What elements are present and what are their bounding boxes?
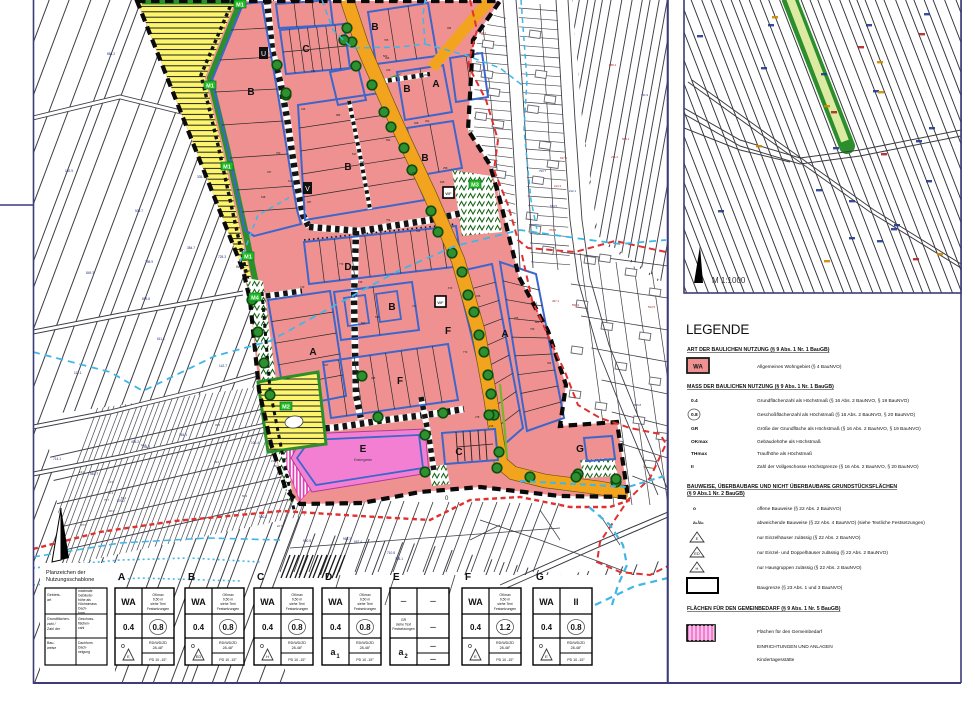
svg-text:A: A xyxy=(118,572,125,583)
svg-text:249: 249 xyxy=(386,68,391,72)
svg-text:899.8: 899.8 xyxy=(142,297,150,301)
svg-text:952.3: 952.3 xyxy=(343,537,351,541)
svg-text:WA: WA xyxy=(260,597,275,607)
svg-text:Festsetzungen: Festsetzungen xyxy=(286,607,308,611)
svg-text:LEGENDE: LEGENDE xyxy=(686,322,749,337)
svg-text:28-48°: 28-48° xyxy=(292,646,303,650)
svg-text:0.4: 0.4 xyxy=(193,623,205,632)
svg-text:212.1: 212.1 xyxy=(569,189,576,193)
svg-text:Gebäude-: Gebäude- xyxy=(78,593,93,597)
svg-text:A: A xyxy=(309,347,316,358)
svg-text:RD/WD/ZD: RD/WD/ZD xyxy=(288,641,306,645)
svg-text:111.1: 111.1 xyxy=(74,371,82,375)
svg-text:986: 986 xyxy=(336,113,341,117)
svg-text:96.9: 96.9 xyxy=(109,509,115,513)
svg-text:44.2: 44.2 xyxy=(141,443,147,447)
svg-text:–: – xyxy=(430,654,436,665)
svg-text:9,50 m: 9,50 m xyxy=(153,598,164,602)
svg-text:607: 607 xyxy=(324,363,329,367)
svg-text:WA: WA xyxy=(693,365,703,371)
svg-text:590.9: 590.9 xyxy=(572,303,579,307)
svg-text:28-48°: 28-48° xyxy=(571,646,582,650)
svg-text:ART DER BAULICHEN NUTZUNG (§ 9: ART DER BAULICHEN NUTZUNG (§ 9 Abs. 1 Nr… xyxy=(687,347,830,353)
svg-text:C: C xyxy=(455,447,462,458)
svg-text:495.2: 495.2 xyxy=(131,440,139,444)
svg-text:B: B xyxy=(388,302,395,313)
svg-text:WF: WF xyxy=(445,191,452,196)
svg-text:F: F xyxy=(397,376,403,387)
svg-text:THmax: THmax xyxy=(691,451,707,457)
svg-text:o: o xyxy=(468,643,472,650)
svg-text:28-48°: 28-48° xyxy=(223,646,234,650)
svg-text:FLÄCHEN FÜR DEN GEMEINBEDARF (: FLÄCHEN FÜR DEN GEMEINBEDARF (§ 9 Abs. 1… xyxy=(687,605,841,612)
svg-text:B: B xyxy=(247,87,254,98)
svg-text:flächen-: flächen- xyxy=(78,621,90,625)
svg-text:308.1: 308.1 xyxy=(395,557,403,561)
svg-text:911: 911 xyxy=(288,179,293,183)
svg-text:0.4: 0.4 xyxy=(123,623,135,632)
svg-text:Flächen für den Gemeinbedarf: Flächen für den Gemeinbedarf xyxy=(757,629,823,635)
svg-text:M4: M4 xyxy=(251,296,260,302)
svg-text:606.8: 606.8 xyxy=(634,403,641,407)
svg-text:590: 590 xyxy=(469,129,474,133)
svg-text:731.9: 731.9 xyxy=(641,93,648,97)
svg-text:E: E xyxy=(696,536,699,541)
svg-text:0.8: 0.8 xyxy=(570,623,582,632)
svg-text:798.9: 798.9 xyxy=(145,260,153,264)
svg-text:195: 195 xyxy=(358,280,363,284)
svg-text:888.4: 888.4 xyxy=(609,63,616,67)
svg-text:Kindertagesstätte: Kindertagesstätte xyxy=(757,657,795,663)
svg-text:Festsetzungen: Festsetzungen xyxy=(392,627,414,631)
svg-text:siehe Text: siehe Text xyxy=(289,602,304,606)
svg-text:o: o xyxy=(260,643,264,650)
svg-text:E: E xyxy=(545,654,548,659)
svg-text:9,50 m: 9,50 m xyxy=(223,598,234,602)
svg-text:1.2: 1.2 xyxy=(499,623,511,632)
svg-text:765: 765 xyxy=(384,38,389,42)
svg-text:RD/WD/ZD: RD/WD/ZD xyxy=(149,641,167,645)
svg-text:793.7: 793.7 xyxy=(539,169,546,173)
svg-text:B: B xyxy=(371,22,378,33)
svg-text:F: F xyxy=(445,326,451,337)
svg-text:254: 254 xyxy=(412,171,417,175)
svg-text:ED: ED xyxy=(196,654,202,659)
svg-text:WA: WA xyxy=(539,597,554,607)
svg-text:436: 436 xyxy=(301,107,306,111)
svg-text:weise: weise xyxy=(47,646,56,650)
svg-text:siehe Text: siehe Text xyxy=(497,602,512,606)
svg-text:D: D xyxy=(344,262,351,273)
svg-text:723: 723 xyxy=(412,304,417,308)
svg-text:Nutzungsschablone: Nutzungsschablone xyxy=(46,577,94,583)
svg-text:29.4: 29.4 xyxy=(214,460,220,464)
svg-text:581.7: 581.7 xyxy=(90,472,98,476)
svg-text:28-48°: 28-48° xyxy=(500,646,511,650)
svg-text:M 1:1000: M 1:1000 xyxy=(712,276,746,285)
svg-text:703.9: 703.9 xyxy=(549,228,556,232)
svg-text:OKmax: OKmax xyxy=(152,593,164,597)
svg-text:–: – xyxy=(430,641,436,652)
svg-text:–: – xyxy=(401,596,407,607)
svg-text:siehe Text: siehe Text xyxy=(396,623,411,627)
svg-text:9,50 m: 9,50 m xyxy=(500,598,511,602)
svg-text:D: D xyxy=(325,572,332,583)
svg-text:384.7: 384.7 xyxy=(187,246,195,250)
svg-text:Festsetzungen: Festsetzungen xyxy=(217,607,239,611)
svg-text:56.3: 56.3 xyxy=(121,496,127,500)
svg-text:668.4: 668.4 xyxy=(622,137,629,141)
svg-text:10.3: 10.3 xyxy=(108,491,114,495)
svg-text:305: 305 xyxy=(371,376,376,380)
svg-text:13.2: 13.2 xyxy=(79,470,85,474)
svg-text:100.4: 100.4 xyxy=(251,441,259,445)
svg-text:E: E xyxy=(474,654,477,659)
svg-text:Traufhöhe als Höchstmaß: Traufhöhe als Höchstmaß xyxy=(757,451,812,457)
svg-text:WA: WA xyxy=(191,597,206,607)
svg-text:192.9: 192.9 xyxy=(65,169,73,173)
svg-text:MASS DER BAULICHEN NUTZUNG (§: MASS DER BAULICHEN NUTZUNG (§ 9 Abs. 1 N… xyxy=(687,384,834,390)
svg-text:M3: M3 xyxy=(471,183,479,189)
svg-text:Dach-: Dach- xyxy=(78,645,87,649)
svg-text:A: A xyxy=(501,329,508,340)
svg-text:offene Bauweise (§ 22 Abs. 2 B: offene Bauweise (§ 22 Abs. 2 BauNVO) xyxy=(757,506,842,512)
svg-text:M1: M1 xyxy=(223,165,231,171)
svg-text:PD 10 -15°: PD 10 -15° xyxy=(567,658,585,662)
svg-text:G: G xyxy=(536,572,544,583)
svg-text:Höchstmass: Höchstmass xyxy=(78,602,97,606)
svg-text:710.8: 710.8 xyxy=(387,551,395,555)
svg-text:Bau-: Bau- xyxy=(47,641,55,645)
svg-text:Planzeichen der: Planzeichen der xyxy=(46,570,86,576)
svg-text:78.2: 78.2 xyxy=(238,508,244,512)
svg-text:Festsetzungen: Festsetzungen xyxy=(147,607,169,611)
svg-text:596: 596 xyxy=(375,315,380,319)
svg-text:PD 10 -15°: PD 10 -15° xyxy=(496,658,514,662)
svg-text:RD/WD/ZD: RD/WD/ZD xyxy=(356,641,374,645)
svg-text:9,50 m: 9,50 m xyxy=(292,598,303,602)
svg-text:Dach-: Dach- xyxy=(78,607,87,611)
svg-text:–: – xyxy=(430,596,436,607)
svg-text:M1: M1 xyxy=(206,84,214,90)
svg-text:764: 764 xyxy=(386,218,391,222)
svg-text:höhe als: höhe als xyxy=(78,598,91,602)
svg-text:0.8: 0.8 xyxy=(691,412,698,418)
svg-text:665: 665 xyxy=(440,180,445,184)
svg-text:Grundflächen-: Grundflächen- xyxy=(47,617,71,621)
svg-text:zahl /: zahl / xyxy=(47,622,56,626)
svg-text:PD 10 -15°: PD 10 -15° xyxy=(288,658,306,662)
svg-text:E: E xyxy=(393,572,400,583)
svg-text:278: 278 xyxy=(475,415,480,419)
svg-text:39.5: 39.5 xyxy=(215,423,221,427)
svg-text:258: 258 xyxy=(443,166,448,170)
svg-text:504.7: 504.7 xyxy=(135,209,143,213)
svg-text:siehe Text: siehe Text xyxy=(220,602,235,606)
svg-text:H: H xyxy=(266,654,269,659)
svg-text:0.4: 0.4 xyxy=(330,623,342,632)
svg-text:OKmax: OKmax xyxy=(359,593,371,597)
svg-text:Gebäudehöhe als Höchstmaß: Gebäudehöhe als Höchstmaß xyxy=(757,439,821,445)
svg-text:Geschoss-: Geschoss- xyxy=(78,617,94,621)
svg-text:547: 547 xyxy=(352,152,357,156)
svg-text:OKmax: OKmax xyxy=(291,593,303,597)
svg-text:611.1: 611.1 xyxy=(157,337,165,341)
svg-text:538: 538 xyxy=(261,195,266,199)
svg-text:Zahl der: Zahl der xyxy=(47,627,61,631)
svg-text:V: V xyxy=(305,186,310,193)
svg-text:maximale: maximale xyxy=(78,589,93,593)
svg-text:Geschoßflächenzahl als Höchstm: Geschoßflächenzahl als Höchstmaß (§ 16 A… xyxy=(757,412,916,418)
svg-text:a₁/a₂: a₁/a₂ xyxy=(693,520,704,526)
svg-text:213.4: 213.4 xyxy=(554,184,561,188)
svg-text:Grundflächenzahl als Höchstmaß: Grundflächenzahl als Höchstmaß (§ 16 Abs… xyxy=(757,398,909,404)
svg-text:abweichende Bauweise (§ 22 Abs: abweichende Bauweise (§ 22 Abs. 4 BauNVO… xyxy=(757,520,925,526)
svg-text:394: 394 xyxy=(447,26,452,30)
svg-text:o: o xyxy=(693,507,696,512)
svg-text:o: o xyxy=(121,643,125,650)
svg-text:Festsetzungen: Festsetzungen xyxy=(494,607,516,611)
svg-text:103: 103 xyxy=(311,69,316,73)
svg-text:497.1: 497.1 xyxy=(552,299,559,303)
svg-text:215: 215 xyxy=(489,424,494,428)
svg-text:271.2: 271.2 xyxy=(611,155,618,159)
svg-text:0.4: 0.4 xyxy=(691,398,698,404)
svg-text:637.5: 637.5 xyxy=(560,156,567,160)
svg-text:siehe Text: siehe Text xyxy=(357,602,372,606)
svg-text:Kindergarten: Kindergarten xyxy=(354,458,372,462)
svg-text:503: 503 xyxy=(383,54,388,58)
svg-text:Baugrenze (§ 23 Abs. 1 und 3 B: Baugrenze (§ 23 Abs. 1 und 3 BauNVO) xyxy=(757,585,843,591)
svg-text:form: form xyxy=(78,611,85,615)
svg-text:713: 713 xyxy=(300,285,305,289)
svg-text:–: – xyxy=(430,622,436,633)
svg-text:0.8: 0.8 xyxy=(291,623,303,632)
svg-text:Dachform: Dachform xyxy=(78,641,93,645)
svg-text:E: E xyxy=(127,654,130,659)
svg-text:0.8: 0.8 xyxy=(152,623,164,632)
svg-text:neigung: neigung xyxy=(78,650,90,654)
svg-text:0.4: 0.4 xyxy=(541,623,553,632)
svg-text:B: B xyxy=(344,162,351,173)
svg-text:87.5: 87.5 xyxy=(81,523,87,527)
svg-text:996: 996 xyxy=(360,160,365,164)
svg-text:928: 928 xyxy=(414,121,419,125)
svg-text:750: 750 xyxy=(276,151,281,155)
svg-text:28-48°: 28-48° xyxy=(360,646,371,650)
svg-text:M2: M2 xyxy=(282,405,290,411)
svg-text:456: 456 xyxy=(476,294,481,298)
svg-text:GR: GR xyxy=(401,618,407,622)
svg-text:773: 773 xyxy=(339,262,344,266)
svg-text:454: 454 xyxy=(547,361,552,365)
svg-text:GR: GR xyxy=(691,426,699,432)
svg-text:714.1: 714.1 xyxy=(53,457,61,461)
svg-text:Gebiets-: Gebiets- xyxy=(47,593,61,597)
svg-text:516.5: 516.5 xyxy=(550,204,557,208)
svg-text:PD 10 -15°: PD 10 -15° xyxy=(149,658,167,662)
svg-text:45.4: 45.4 xyxy=(201,420,207,424)
svg-text:79.7: 79.7 xyxy=(104,498,110,502)
svg-text:C: C xyxy=(302,44,309,55)
svg-text:o: o xyxy=(191,643,195,650)
svg-text:B: B xyxy=(403,84,410,95)
svg-text:728.3: 728.3 xyxy=(218,255,226,259)
svg-text:RD/WD/ZD: RD/WD/ZD xyxy=(567,641,585,645)
svg-text:0.8: 0.8 xyxy=(222,623,234,632)
svg-text:9,50 m: 9,50 m xyxy=(360,598,371,602)
svg-text:PD 10 -15°: PD 10 -15° xyxy=(356,658,374,662)
svg-text:0.4: 0.4 xyxy=(262,623,274,632)
svg-text:M1: M1 xyxy=(236,3,244,9)
svg-text:205: 205 xyxy=(514,316,519,320)
svg-text:M1: M1 xyxy=(244,255,252,261)
svg-text:Zahl der Vollgeschosse Höchstg: Zahl der Vollgeschosse Höchstgrenze (§ 1… xyxy=(757,464,919,470)
svg-text:28-48°: 28-48° xyxy=(153,646,164,650)
svg-text:OKmax: OKmax xyxy=(222,593,234,597)
svg-text:287: 287 xyxy=(307,200,312,204)
svg-text:Allgemeines Wohngebiet (§ 4 Ba: Allgemeines Wohngebiet (§ 4 BauNVO) xyxy=(757,364,842,370)
svg-text:EINRICHTUNGEN UND ANLAGEN: EINRICHTUNGEN UND ANLAGEN xyxy=(757,644,833,650)
svg-text:zahl: zahl xyxy=(78,626,84,630)
svg-text:353: 353 xyxy=(424,73,429,77)
svg-text:H: H xyxy=(696,566,699,571)
svg-text:0.4: 0.4 xyxy=(470,623,482,632)
svg-text:ED: ED xyxy=(694,551,700,556)
svg-text:nur Hausgruppen zulässig (§ 22: nur Hausgruppen zulässig (§ 22 Abs. 2 Ba… xyxy=(757,565,862,571)
svg-text:950.5: 950.5 xyxy=(303,539,311,543)
svg-text:WA: WA xyxy=(468,597,483,607)
svg-text:164.1: 164.1 xyxy=(179,433,187,437)
svg-text:A: A xyxy=(432,79,439,90)
svg-text:Größe der Grundfläche als Höch: Größe der Grundfläche als Höchstmaß (§ 1… xyxy=(757,426,921,432)
svg-text:art: art xyxy=(47,598,51,602)
svg-text:F: F xyxy=(465,572,471,583)
svg-text:892: 892 xyxy=(386,138,391,142)
svg-text:884.2: 884.2 xyxy=(107,52,115,56)
svg-text:56.4: 56.4 xyxy=(242,494,248,498)
svg-text:799: 799 xyxy=(530,327,535,331)
svg-text:U: U xyxy=(261,51,266,58)
svg-text:562: 562 xyxy=(361,321,366,325)
svg-text:nur Einzelhäuser zulässig (§ 2: nur Einzelhäuser zulässig (§ 22 Abs. 2 B… xyxy=(757,535,861,541)
svg-text:RD/WD/ZD: RD/WD/ZD xyxy=(219,641,237,645)
svg-text:(§ 9 Abs.1 Nr. 2 BauGB): (§ 9 Abs.1 Nr. 2 BauGB) xyxy=(687,491,745,497)
svg-text:G: G xyxy=(576,444,584,455)
svg-text:PD 10 -15°: PD 10 -15° xyxy=(219,658,237,662)
svg-text:B: B xyxy=(421,153,428,164)
svg-text:BAUWEISE, ÜBERBAUBARE UND NICH: BAUWEISE, ÜBERBAUBARE UND NICHT ÜBERBAUB… xyxy=(687,483,897,490)
svg-text:880: 880 xyxy=(535,320,540,324)
svg-text:siehe Text: siehe Text xyxy=(150,602,165,606)
svg-text:WF: WF xyxy=(437,300,444,305)
svg-text:142.7: 142.7 xyxy=(219,364,227,368)
svg-text:OKmax: OKmax xyxy=(499,593,511,597)
svg-text:302: 302 xyxy=(425,119,430,123)
svg-text:OKmax: OKmax xyxy=(691,439,708,445)
svg-text:RD/WD/ZD: RD/WD/ZD xyxy=(496,641,514,645)
svg-text:523.5: 523.5 xyxy=(648,305,655,309)
svg-text:694: 694 xyxy=(416,229,421,233)
svg-text:849.3: 849.3 xyxy=(86,271,94,275)
svg-text:C: C xyxy=(257,572,264,583)
svg-text:Festsetzungen: Festsetzungen xyxy=(354,607,376,611)
svg-text:13.9: 13.9 xyxy=(108,480,114,484)
svg-text:337: 337 xyxy=(267,170,272,174)
svg-text:E: E xyxy=(360,444,367,455)
svg-text:WW: WW xyxy=(236,264,244,269)
svg-text:WA: WA xyxy=(121,597,136,607)
svg-text:673: 673 xyxy=(448,286,453,290)
svg-text:0.8: 0.8 xyxy=(359,623,371,632)
svg-text:B: B xyxy=(188,572,195,583)
svg-text:II: II xyxy=(573,597,578,607)
svg-text:nur Einzel- und Doppelhäuser z: nur Einzel- und Doppelhäuser zulässig (§… xyxy=(757,550,888,556)
svg-text:960.2: 960.2 xyxy=(259,515,267,519)
svg-text:WA: WA xyxy=(328,597,343,607)
svg-text:773: 773 xyxy=(463,350,468,354)
svg-text:o: o xyxy=(539,643,543,650)
